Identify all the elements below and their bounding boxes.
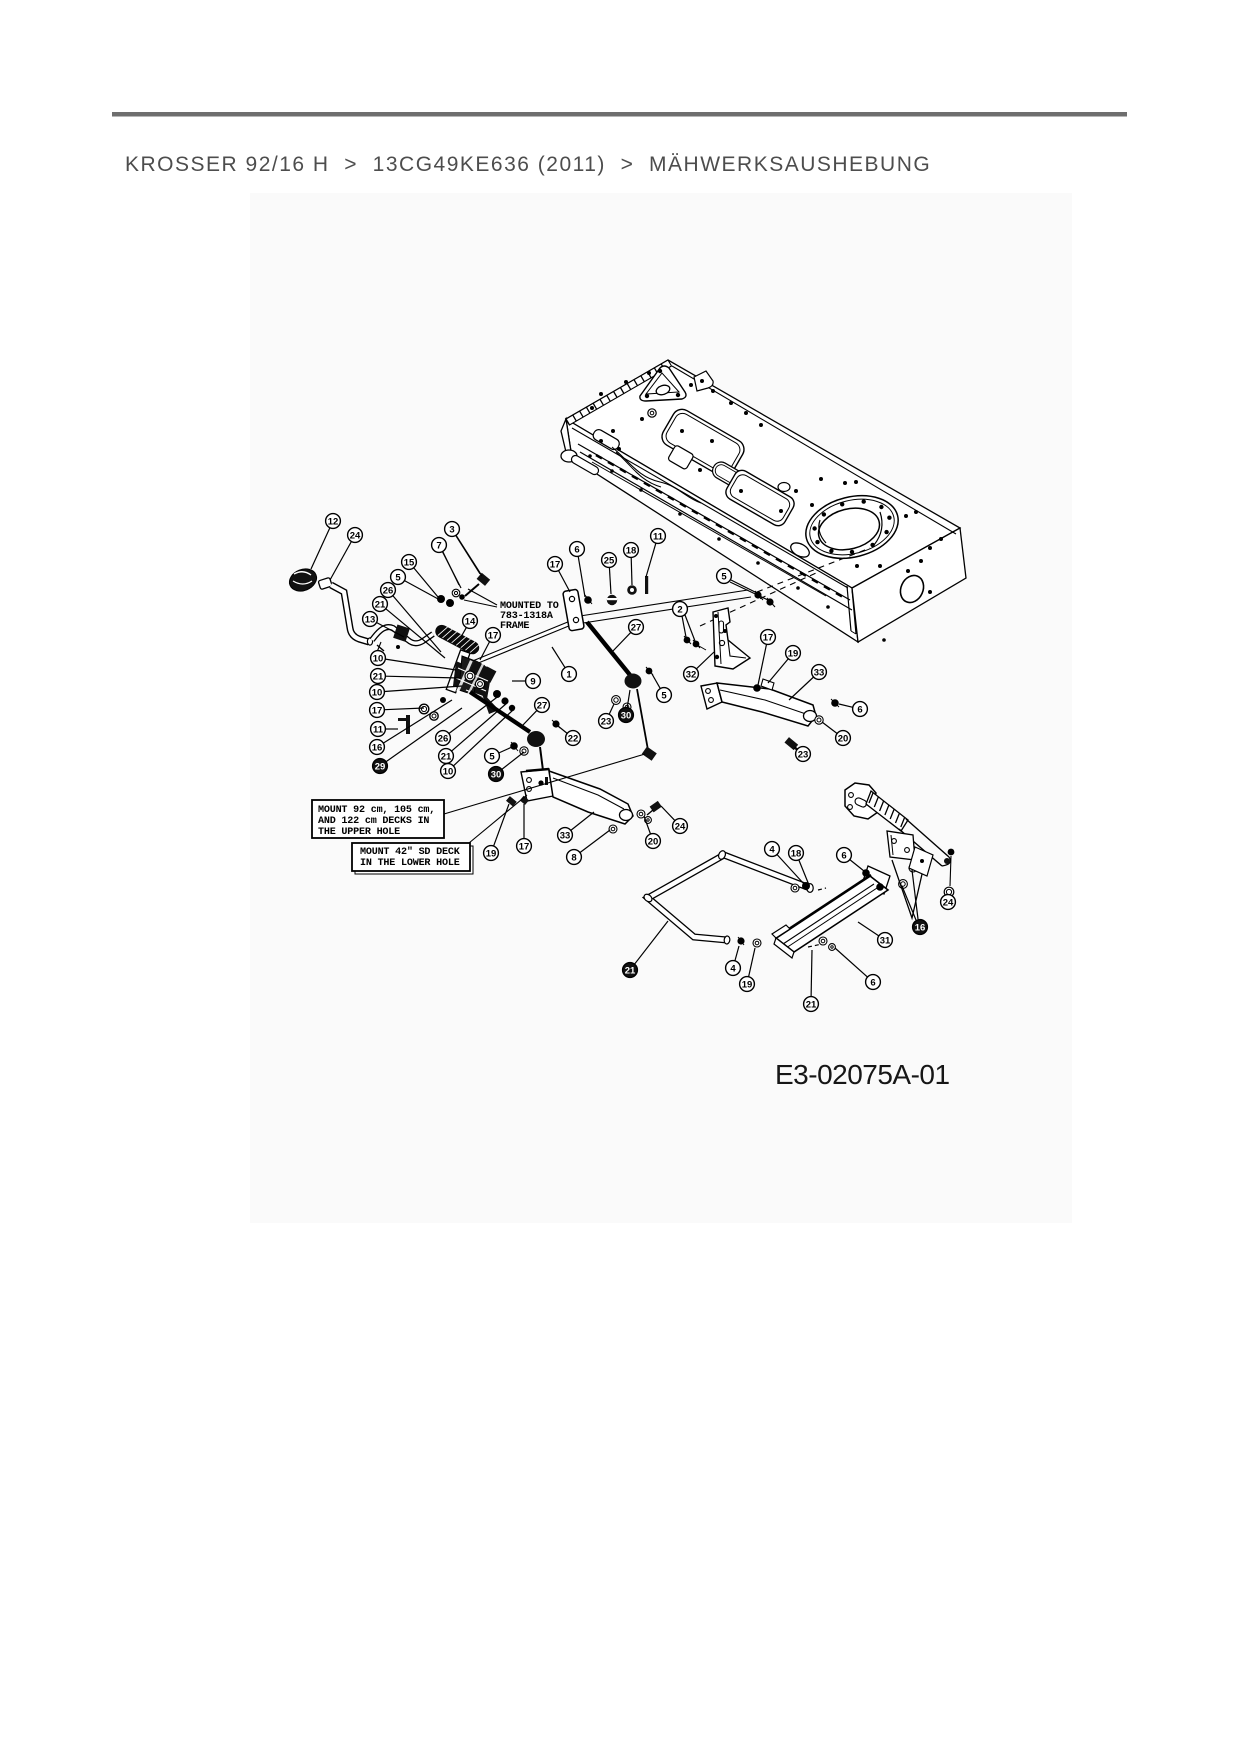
svg-text:15: 15 [404, 557, 415, 568]
svg-text:26: 26 [383, 585, 394, 596]
svg-text:24: 24 [675, 821, 686, 832]
svg-text:4: 4 [730, 963, 736, 974]
svg-text:THE UPPER HOLE: THE UPPER HOLE [318, 827, 400, 838]
svg-text:23: 23 [601, 716, 612, 727]
svg-text:21: 21 [375, 599, 386, 610]
svg-text:5: 5 [721, 571, 727, 582]
svg-text:22: 22 [568, 733, 579, 744]
svg-text:24: 24 [943, 897, 954, 908]
svg-text:2: 2 [677, 604, 682, 615]
svg-text:27: 27 [537, 700, 548, 711]
svg-text:11: 11 [373, 724, 384, 735]
svg-text:12: 12 [328, 516, 339, 527]
svg-text:21: 21 [806, 999, 817, 1010]
svg-text:16: 16 [915, 922, 926, 933]
svg-text:26: 26 [438, 733, 449, 744]
svg-text:5: 5 [661, 690, 667, 701]
svg-text:MOUNT 92 cm, 105 cm,: MOUNT 92 cm, 105 cm, [318, 805, 435, 816]
svg-text:29: 29 [375, 761, 386, 772]
svg-text:21: 21 [625, 965, 636, 976]
svg-text:33: 33 [560, 830, 571, 841]
svg-text:13: 13 [365, 614, 376, 625]
svg-text:16: 16 [372, 742, 383, 753]
svg-text:20: 20 [648, 836, 659, 847]
svg-text:32: 32 [686, 669, 697, 680]
svg-text:6: 6 [870, 977, 875, 988]
svg-text:FRAME: FRAME [500, 621, 529, 632]
svg-text:19: 19 [788, 648, 799, 659]
svg-text:5: 5 [395, 572, 401, 583]
svg-text:10: 10 [372, 687, 383, 698]
svg-text:7: 7 [436, 540, 441, 551]
svg-text:17: 17 [763, 632, 774, 643]
svg-text:25: 25 [604, 555, 615, 566]
svg-text:10: 10 [373, 653, 384, 664]
svg-text:18: 18 [626, 545, 637, 556]
svg-text:IN THE LOWER HOLE: IN THE LOWER HOLE [360, 858, 460, 869]
svg-text:6: 6 [841, 850, 846, 861]
svg-text:17: 17 [488, 630, 499, 641]
svg-text:19: 19 [742, 979, 753, 990]
svg-text:4: 4 [769, 844, 775, 855]
svg-text:11: 11 [653, 531, 664, 542]
svg-text:KROSSER 92/16 H > 13CG49KE63: KROSSER 92/16 H > 13CG49KE636 (2011) > M… [125, 153, 931, 176]
svg-text:10: 10 [443, 766, 454, 777]
svg-text:24: 24 [350, 530, 361, 541]
svg-text:33: 33 [814, 667, 825, 678]
svg-text:21: 21 [441, 751, 452, 762]
svg-text:1: 1 [566, 669, 572, 680]
svg-text:6: 6 [857, 704, 862, 715]
svg-text:3: 3 [449, 524, 454, 535]
svg-text:MOUNT 42" SD DECK: MOUNT 42" SD DECK [360, 846, 461, 858]
svg-text:5: 5 [489, 751, 495, 762]
svg-text:17: 17 [550, 559, 561, 570]
svg-text:30: 30 [621, 710, 632, 721]
svg-text:17: 17 [372, 705, 383, 716]
svg-text:AND 122 cm DECKS IN: AND 122 cm DECKS IN [318, 816, 429, 827]
svg-text:30: 30 [491, 769, 502, 780]
svg-text:17: 17 [519, 841, 530, 852]
svg-text:27: 27 [631, 622, 642, 633]
svg-text:6: 6 [574, 544, 579, 555]
svg-text:9: 9 [530, 676, 535, 687]
svg-text:18: 18 [791, 848, 802, 859]
svg-text:14: 14 [465, 616, 476, 627]
svg-text:19: 19 [486, 848, 497, 859]
svg-text:23: 23 [798, 749, 809, 760]
svg-text:E3-02075A-01: E3-02075A-01 [775, 1059, 950, 1090]
svg-text:8: 8 [571, 852, 576, 863]
svg-text:21: 21 [373, 671, 384, 682]
svg-text:20: 20 [838, 733, 849, 744]
svg-text:31: 31 [880, 935, 891, 946]
